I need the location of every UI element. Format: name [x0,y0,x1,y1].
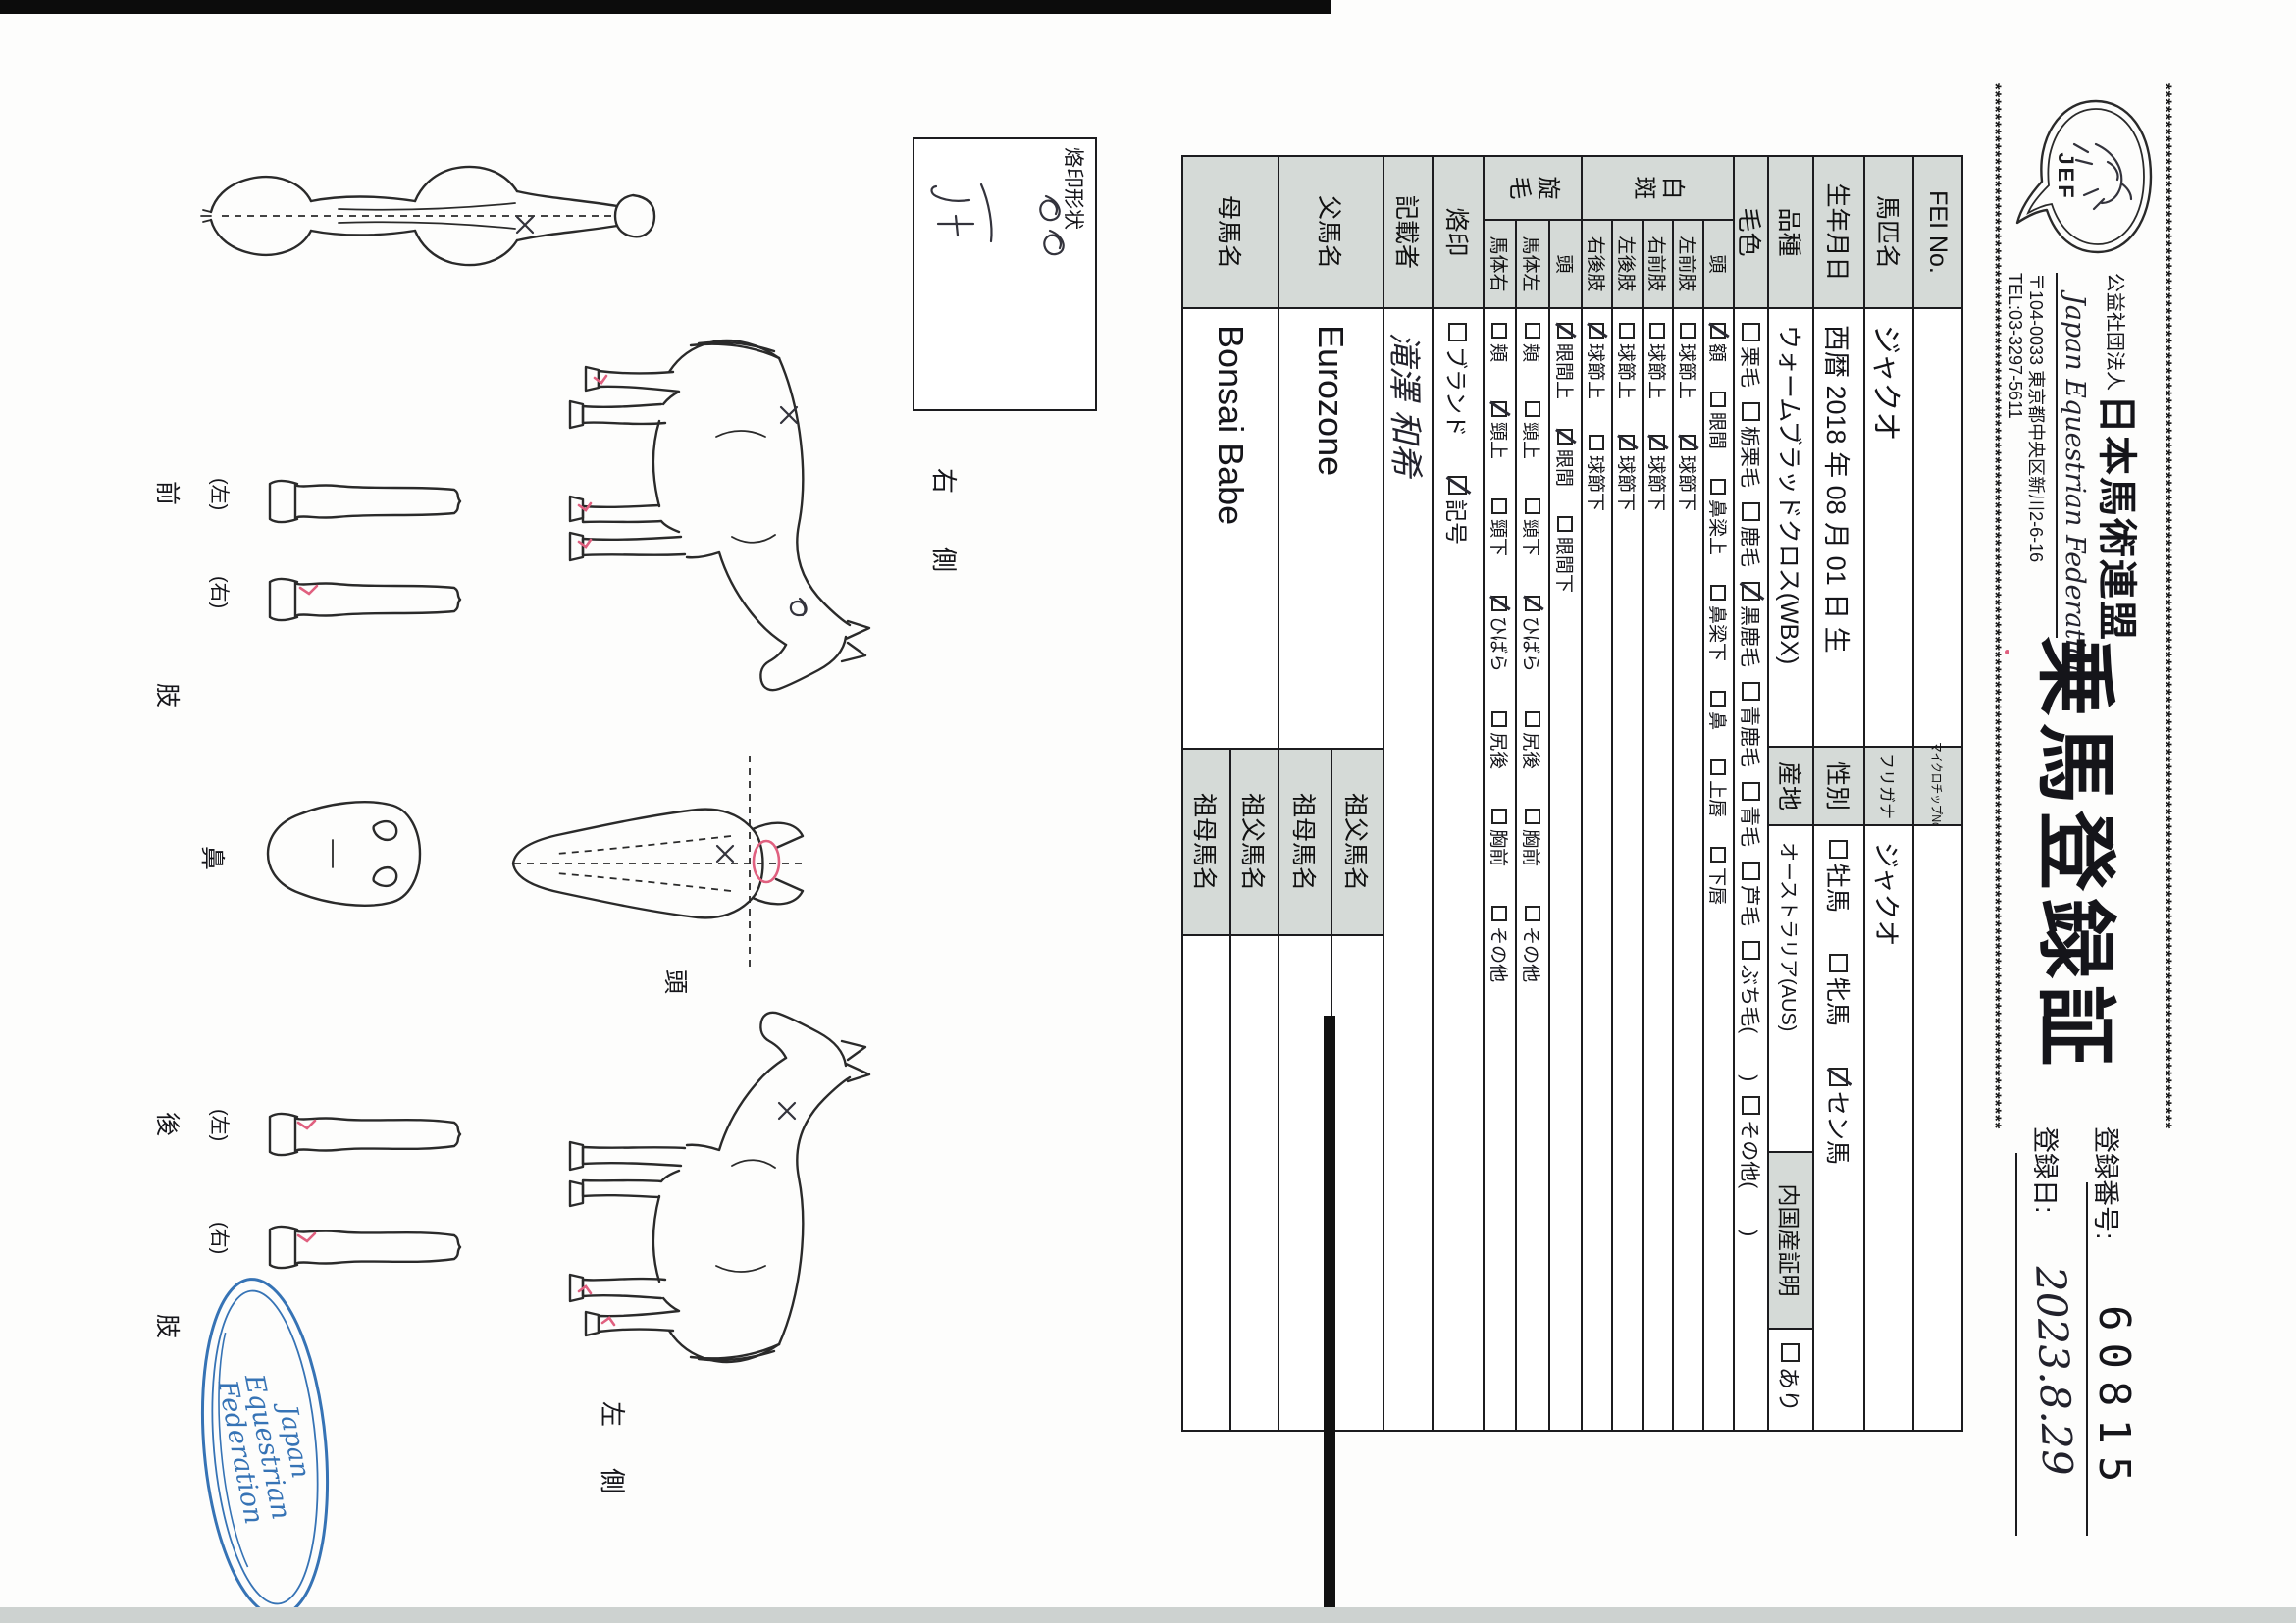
checkbox-option-label: 球節下 [1675,455,1701,511]
checkbox-option-label: 芦毛 [1737,885,1766,926]
checkbox-option-label: 黒鹿毛 [1737,605,1766,667]
microchip-label: マイクロチップNo. [1929,742,1948,831]
checkbox-option[interactable]: 青毛 [1737,782,1766,847]
checkbox-option-label: 眼間 [1705,412,1732,449]
checkbox-option-label: ぶち毛( ) [1737,965,1766,1081]
white-markings-lh-options: 球節上球節下 [1611,307,1644,1432]
white-markings-row-label: 右前肢 [1642,219,1674,309]
unchecked-checkbox-icon[interactable] [1492,906,1508,921]
checkbox-option[interactable]: 黒鹿毛 [1737,582,1766,667]
asterisk-border-top: ****************************************… [2157,83,2174,1614]
sex-label: 性別 [1812,746,1865,826]
checkbox-option[interactable]: 栗毛 [1737,323,1766,388]
top-view-horse [201,167,654,265]
dam-grandsire-label: 祖父馬名 [1229,748,1279,936]
checkbox-option[interactable]: 球節下 [1644,435,1671,511]
checkbox-option[interactable]: 頸下 [1520,498,1546,556]
checkbox-option[interactable]: 牝馬 [1821,954,1856,1026]
unchecked-checkbox-icon[interactable] [1525,711,1540,727]
checkbox-option[interactable]: 球節下 [1584,435,1610,511]
brand-label: 烙印 [1432,155,1485,309]
org-type: 公益社団法人 [2103,273,2131,391]
unchecked-checkbox-icon[interactable] [1492,323,1508,339]
checkbox-option[interactable]: 鼻梁上 [1705,479,1732,555]
domestic-cert-label: 内国産証明 [1767,1151,1814,1330]
whorls-body-right-options: 頬頸上頸下ひばら尻後胸前その他 [1483,307,1517,1432]
checkbox-option-label: 頬 [1520,343,1546,362]
checkbox-option-label: 球節上 [1644,343,1671,399]
horse-name-value[interactable]: ジャクオ [1863,307,1914,748]
checkbox-option-label: セン馬 [1821,1091,1856,1165]
checkbox-option-label: ブランド [1441,346,1475,437]
checkbox-option[interactable]: 鹿毛 [1737,502,1766,567]
checkbox-option-label: 頸上 [1487,422,1513,459]
checked-checkbox-icon[interactable] [1590,323,1605,339]
checked-checkbox-icon[interactable] [1449,476,1468,495]
checkbox-option[interactable]: 球節下 [1675,435,1701,511]
checkbox-option[interactable]: 眼間 [1552,429,1579,487]
unchecked-checkbox-icon[interactable] [1492,711,1508,727]
unchecked-checkbox-icon[interactable] [1558,516,1574,532]
unchecked-checkbox-icon[interactable] [1742,402,1760,421]
checkbox-option[interactable]: 球節上 [1614,323,1641,399]
whorls-body-left-label: 馬体左 [1515,219,1550,309]
microchip-value[interactable] [1912,824,1963,1432]
checkbox-option-label: 眼間上 [1552,343,1579,399]
unchecked-checkbox-icon[interactable] [1492,809,1508,824]
unchecked-checkbox-icon[interactable] [1711,585,1727,601]
checkbox-option[interactable]: ブランド [1441,323,1475,437]
checkbox-option-label: 牝馬 [1821,977,1856,1026]
checkbox-option-label: 球節上 [1584,343,1610,399]
head-diagram [513,756,803,971]
dam-value[interactable]: Bonsai Babe [1181,307,1279,750]
checked-checkbox-icon[interactable] [1558,323,1574,339]
checkbox-option[interactable]: セン馬 [1821,1068,1856,1165]
checkbox-option[interactable]: その他 [1520,906,1546,982]
checkbox-option-label: 眼間下 [1552,537,1579,593]
white-markings-rf-options: 球節上球節下 [1642,307,1674,1432]
checkbox-option-label: 上唇 [1705,780,1732,817]
checkbox-option[interactable]: 記号 [1441,476,1475,545]
dam-label: 母馬名 [1181,155,1279,309]
checkbox-option-label: ひばら [1520,616,1546,672]
unchecked-checkbox-icon[interactable] [1742,682,1760,701]
jef-logo: JEF [2005,93,2157,260]
front-legs-diagram [270,481,460,620]
whorls-body-left-options: 頬頸上頸下ひばら尻後胸前その他 [1515,307,1550,1432]
registration-date-label: 登録日: [2028,1126,2066,1214]
checkbox-option[interactable]: 球節上 [1644,323,1671,399]
checkbox-option[interactable]: 頬 [1520,323,1546,362]
whorls-group-label: 旋毛 [1483,155,1583,221]
checkbox-option[interactable]: その他( ) [1737,1096,1766,1236]
scan-edge-artifact-right [0,1607,2296,1623]
breed-label: 品種 [1767,155,1814,309]
checkbox-option[interactable]: 球節上 [1675,323,1701,399]
checkbox-option[interactable]: 頸上 [1520,401,1546,459]
checkbox-option-label: 頬 [1487,343,1513,362]
unchecked-checkbox-icon[interactable] [1711,847,1727,863]
white-markings-rh-options: 球節上球節下 [1581,307,1613,1432]
checkbox-option-label: 下唇 [1705,867,1732,905]
sire-granddam-label: 祖母馬名 [1278,748,1332,936]
white-markings-lf-options: 球節上球節下 [1672,307,1704,1432]
checkbox-option[interactable]: 胸前 [1520,809,1546,866]
white-markings-head-options: 額眼間鼻梁上鼻梁下鼻上唇下唇 [1702,307,1735,1432]
checkbox-option-label: 鼻梁上 [1705,499,1732,555]
registration-date: 2023.8.29 [2026,1265,2081,1476]
unchecked-checkbox-icon[interactable] [1742,1096,1760,1115]
checkbox-option[interactable]: 胸前 [1487,809,1513,866]
recorder-value[interactable]: 滝澤 和希 [1383,309,1434,478]
scanned-document: ****************************************… [0,0,2296,1623]
origin-label: 産地 [1767,746,1814,826]
dam-granddam-value[interactable] [1181,934,1231,1432]
unchecked-checkbox-icon[interactable] [1742,941,1760,960]
unchecked-checkbox-icon[interactable] [1525,809,1540,824]
sire-value[interactable]: Eurozone [1278,307,1384,750]
checkbox-option[interactable]: 上唇 [1705,759,1732,817]
checkbox-option[interactable]: 頸下 [1487,498,1513,556]
checkbox-option-label: 尻後 [1520,732,1546,769]
checked-checkbox-icon[interactable] [1742,582,1760,601]
checkbox-option-label: 頸下 [1520,519,1546,556]
fei-no-value[interactable] [1912,307,1963,748]
scan-fold-artifact [1324,1016,1335,1623]
checkbox-option-label: 栗毛 [1737,346,1766,388]
unchecked-checkbox-icon[interactable] [1525,401,1540,417]
checkbox-option-label: 記号 [1441,499,1475,545]
checkbox-option-label: 頸上 [1520,422,1546,459]
asterisk-border-bottom: ****************************************… [1986,83,2004,1614]
white-markings-lh-label: 左後肢 [1611,219,1644,309]
checkbox-option-label: 眼間 [1552,449,1579,487]
fei-no-label: FEI No. [1912,155,1963,309]
checkbox-option[interactable]: 頸上 [1487,401,1513,459]
checked-checkbox-icon[interactable] [1492,401,1508,417]
horse-name-label: 馬匹名 [1863,155,1914,309]
org-underline [2056,273,2058,638]
org-name: 日本馬術連盟 [2092,394,2149,642]
checked-checkbox-icon[interactable] [1711,323,1727,339]
scan-edge-artifact-left [0,0,1331,14]
checkbox-option-label: ひばら [1487,616,1513,672]
registration-number-underline [2086,1182,2088,1536]
whorls-body-right-label: 馬体右 [1483,219,1517,309]
checkbox-option-label: 球節下 [1614,455,1641,511]
sex-options: 牡馬牝馬セン馬 [1812,824,1865,1432]
right-side-horse [570,340,869,690]
registration-date-underline [2015,1153,2017,1536]
hind-legs-diagram [270,1114,460,1268]
sire-grandsire-value[interactable] [1331,934,1384,1432]
whorls-head-label: 頭 [1548,219,1583,309]
org-name-en: Japan Equestrian Federation [2060,294,2090,681]
checkbox-option[interactable]: ひばら [1520,596,1546,672]
pink-speck [2005,650,2009,654]
unchecked-checkbox-icon[interactable] [1650,323,1666,339]
checkbox-option[interactable]: 額 [1705,323,1732,362]
checked-checkbox-icon[interactable] [1492,596,1508,611]
checkbox-option[interactable]: 鼻 [1705,691,1732,730]
checked-checkbox-icon[interactable] [1525,596,1540,611]
checkbox-option[interactable]: 頬 [1487,323,1513,362]
checkbox-option-label: 牡馬 [1821,864,1856,913]
checkbox-option[interactable]: 眼間下 [1552,516,1579,593]
horse-diagrams: Japan Equestrian Federation [0,0,1182,1623]
checkbox-option[interactable]: 尻後 [1520,711,1546,769]
checked-checkbox-icon[interactable] [1620,435,1636,450]
breed-value[interactable]: ウォームブラッドクロス(WBX) [1767,307,1814,748]
coat-color-options: 栗毛栃栗毛鹿毛黒鹿毛青鹿毛青毛芦毛ぶち毛( )その他( ) [1733,307,1769,1432]
domestic-cert-options: あり [1767,1328,1814,1432]
unchecked-checkbox-icon[interactable] [1830,954,1849,972]
unchecked-checkbox-icon[interactable] [1742,323,1760,341]
sire-grandsire-label: 祖父馬名 [1331,748,1384,936]
checkbox-option-label: 青鹿毛 [1737,706,1766,767]
whorls-head-options: 眼間上眼間眼間下 [1548,307,1583,1432]
dam-grandsire-value[interactable] [1229,934,1279,1432]
registration-number-label: 登録番号: [2089,1126,2127,1240]
unchecked-checkbox-icon[interactable] [1525,498,1540,514]
checkbox-option[interactable]: ぶち毛( ) [1737,941,1766,1081]
white-markings-row-label: 左前肢 [1672,219,1704,309]
unchecked-checkbox-icon[interactable] [1711,691,1727,707]
left-side-horse [570,1013,869,1362]
origin-value[interactable]: オーストラリア(AUS) [1767,824,1814,1153]
checkbox-option[interactable]: 眼間上 [1552,323,1579,399]
checkbox-option[interactable]: あり [1774,1343,1807,1412]
checked-checkbox-icon[interactable] [1830,1068,1849,1086]
birth-date-value[interactable]: 西暦 2018 年 08 月 01 日 生 [1812,307,1865,748]
checkbox-option-label: 青毛 [1737,806,1766,847]
birth-date-label: 生年月日 [1812,155,1865,309]
checked-checkbox-icon[interactable] [1650,435,1666,450]
unchecked-checkbox-icon[interactable] [1742,502,1760,521]
checkbox-option[interactable]: 下唇 [1705,847,1732,905]
unchecked-checkbox-icon[interactable] [1711,392,1727,407]
checkbox-option[interactable]: ひばら [1487,596,1513,672]
checkbox-option-label: あり [1774,1367,1807,1412]
unchecked-checkbox-icon[interactable] [1742,862,1760,880]
unchecked-checkbox-icon[interactable] [1681,323,1696,339]
checkbox-option-label: 尻後 [1487,732,1513,769]
white-markings-rh-label: 右後肢 [1581,219,1613,309]
checkbox-option[interactable]: 芦毛 [1737,862,1766,926]
unchecked-checkbox-icon[interactable] [1742,782,1760,801]
jef-stamp: Japan Equestrian Federation [189,1274,340,1620]
registration-number: 60815 [2089,1305,2139,1493]
unchecked-checkbox-icon[interactable] [1492,498,1508,514]
checkbox-option-label: その他 [1520,926,1546,982]
checkbox-option-label: その他 [1487,926,1513,982]
checkbox-option-label: 球節上 [1614,343,1641,399]
checkbox-option[interactable]: その他 [1487,906,1513,982]
checkbox-option[interactable]: 尻後 [1487,711,1513,769]
checkbox-option[interactable]: 球節下 [1614,435,1641,511]
white-markings-group-label: 白斑 [1581,155,1735,221]
checkbox-option-label: 胸前 [1520,829,1546,866]
checkbox-option[interactable]: 栃栗毛 [1737,402,1766,488]
unchecked-checkbox-icon[interactable] [1782,1343,1800,1362]
checkbox-option-label: 鼻 [1705,711,1732,730]
checkbox-option[interactable]: 眼間 [1705,392,1732,449]
checkbox-option-label: その他( ) [1737,1120,1766,1236]
coat-color-label: 毛色 [1733,155,1769,309]
checkbox-option-label: 栃栗毛 [1737,426,1766,488]
org-tel: TEL:03-3297-5611 [2005,273,2025,419]
unchecked-checkbox-icon[interactable] [1590,435,1605,450]
unchecked-checkbox-icon[interactable] [1449,323,1468,341]
checkbox-option[interactable]: 球節上 [1584,323,1610,399]
checked-checkbox-icon[interactable] [1558,429,1574,445]
checked-checkbox-icon[interactable] [1681,435,1696,450]
checkbox-option[interactable]: 鼻梁下 [1705,585,1732,661]
furigana-label: フリガナ [1863,746,1914,826]
unchecked-checkbox-icon[interactable] [1711,759,1727,775]
dam-granddam-label: 祖母馬名 [1181,748,1231,936]
checkbox-option[interactable]: 牡馬 [1821,840,1856,913]
page-title: 乗馬登録証 [2024,636,2141,1073]
recorder-label: 記載者 [1383,155,1434,309]
org-address: 〒104-0033 東京都中央区新川2-6-16 [2024,273,2050,562]
muzzle-diagram [268,802,420,906]
checkbox-option-label: 胸前 [1487,829,1513,866]
checkbox-option-label: 鹿毛 [1737,526,1766,567]
unchecked-checkbox-icon[interactable] [1525,906,1540,921]
unchecked-checkbox-icon[interactable] [1620,323,1636,339]
checkbox-option[interactable]: 青鹿毛 [1737,682,1766,767]
unchecked-checkbox-icon[interactable] [1830,840,1849,859]
checkbox-option-label: 球節下 [1644,455,1671,511]
checkbox-option-label: 球節上 [1675,343,1701,399]
jef-logo-text: JEF [2054,152,2078,200]
sire-label: 父馬名 [1278,155,1384,309]
checkbox-option-label: 鼻梁下 [1705,605,1732,661]
checkbox-option-label: 頸下 [1487,519,1513,556]
checkbox-option-label: 額 [1705,343,1732,362]
white-markings-row-label: 頭 [1702,219,1735,309]
unchecked-checkbox-icon[interactable] [1711,479,1727,495]
certificate-page: ****************************************… [0,0,2296,1623]
brand-options: ブランド記号 [1432,307,1485,1432]
unchecked-checkbox-icon[interactable] [1525,323,1540,339]
furigana-value[interactable]: ジャクオ [1863,824,1914,1432]
checkbox-option-label: 球節下 [1584,455,1610,511]
